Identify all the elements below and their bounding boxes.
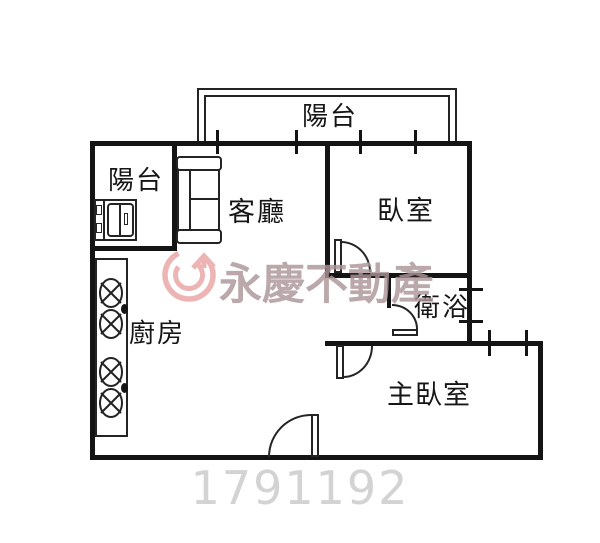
room-label-master-bedroom: 主臥室 — [384, 381, 474, 409]
sofa-cushion — [189, 198, 220, 231]
window-tick — [488, 330, 491, 356]
sofa-armrest-bottom — [176, 229, 222, 244]
window-tick — [216, 130, 219, 154]
yungching-logo-icon — [160, 246, 218, 304]
window-tick — [459, 288, 483, 291]
room-label-bedroom: 臥室 — [366, 197, 446, 225]
washer-door-divider — [119, 205, 121, 235]
watermark-brand-text: 永慶不動產 — [219, 250, 434, 312]
room-label-living-room: 客廳 — [217, 198, 297, 226]
entrance-door-swing-arc — [268, 414, 311, 457]
window-tick — [295, 130, 298, 154]
window-tick — [525, 330, 528, 356]
stove-knob-dot — [121, 304, 128, 314]
master-door-swing-arc — [343, 346, 373, 378]
wall-master-right — [538, 341, 543, 460]
room-label-kitchen: 廚房 — [117, 319, 197, 347]
washer-knob — [96, 223, 102, 233]
sofa-cushion — [189, 169, 220, 200]
stove-knob-dot — [121, 383, 128, 393]
bathroom-door-leaf — [392, 329, 418, 336]
window-tick — [359, 130, 362, 154]
washer-knob — [96, 205, 102, 215]
entrance-door-leaf — [311, 414, 319, 457]
floor-plan-canvas: 陽台 陽台 客廳 臥室 衛浴 主臥室 廚房 永慶不動產 1791192 — [0, 0, 600, 543]
photo-id-number: 1791192 — [0, 461, 600, 515]
washer-panel-divider — [103, 201, 105, 239]
room-label-balcony-left: 陽台 — [96, 166, 176, 194]
room-label-balcony-top: 陽台 — [290, 102, 370, 130]
washer-handle — [124, 213, 128, 225]
window-tick — [414, 130, 417, 154]
